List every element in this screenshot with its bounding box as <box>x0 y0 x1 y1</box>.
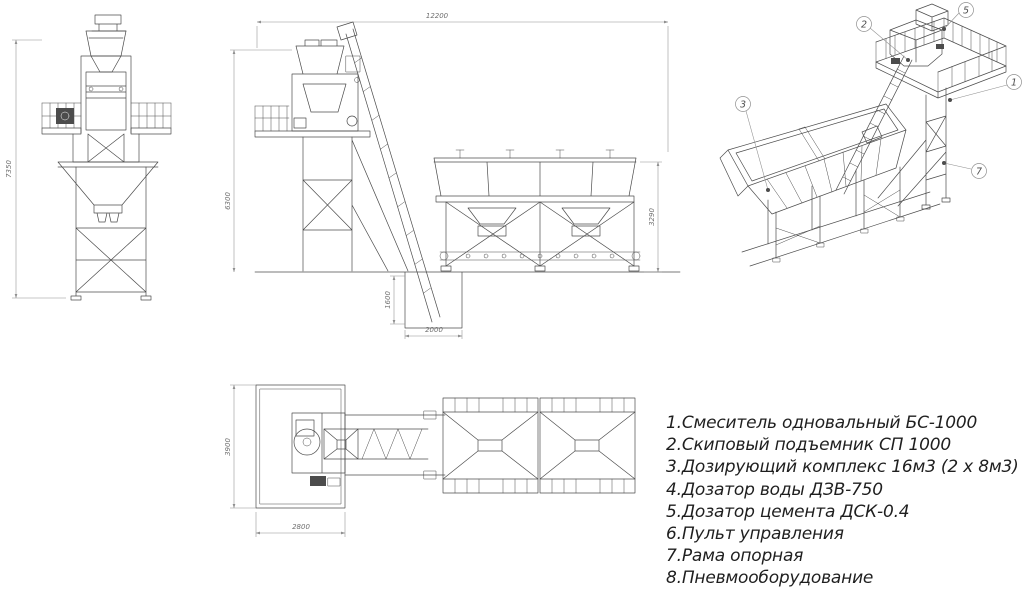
dim-side-mixer-height: 6300 <box>224 50 292 272</box>
callout-balloon-2: 2 <box>857 17 911 63</box>
parts-list-item-4: 4.Дозатор воды ДЗВ-750 <box>666 479 1024 501</box>
dim-label-mixer-height: 6300 <box>224 192 232 210</box>
parts-list-item-1: 1.Смеситель одновальный БС-1000 <box>666 412 1024 434</box>
callout-balloon-7: 7 <box>942 161 987 179</box>
callout-balloon-1: 1 <box>948 75 1022 103</box>
callout-number-3: 3 <box>740 99 746 110</box>
plan-view: 3900 2800 <box>224 385 635 537</box>
parts-list: 1.Смеситель одновальный БС-1000 2.Скипов… <box>666 412 1024 590</box>
dim-label-front-height: 7350 <box>5 160 13 178</box>
callout-number-5: 5 <box>963 5 969 16</box>
parts-list-item-8: 8.Пневмооборудование <box>666 567 1024 589</box>
callout-number-7: 7 <box>976 166 982 177</box>
dim-label-platform-length: 2800 <box>292 523 310 531</box>
isometric-view: 5 2 1 3 7 <box>720 3 1022 267</box>
dim-pit-depth: 1600 <box>384 276 405 324</box>
plan-view-geometry <box>256 385 635 508</box>
isometric-geometry <box>720 4 1006 266</box>
parts-list-item-2: 2.Скиповый подъемник СП 1000 <box>666 434 1024 456</box>
callout-number-1: 1 <box>1011 77 1017 88</box>
dim-label-plan-width: 3900 <box>224 438 232 456</box>
dim-label-pit-depth: 1600 <box>384 291 392 309</box>
parts-list-item-3: 3.Дозирующий комплекс 16м3 (2 х 8м3) <box>666 456 1024 478</box>
dim-plan-overall-width: 3900 <box>224 385 256 508</box>
dim-front-overall-height: 7350 <box>5 40 66 298</box>
dim-side-bins-height: 3290 <box>640 162 662 272</box>
parts-list-item-6: 6.Пульт управления <box>666 523 1024 545</box>
dim-label-overall-length: 12200 <box>426 12 449 20</box>
callout-balloon-5: 5 <box>942 3 974 32</box>
side-view: 12200 6300 <box>224 12 680 339</box>
parts-list-item-5: 5.Дозатор цемента ДСК-0.4 <box>666 501 1024 523</box>
dim-label-bins-height: 3290 <box>648 208 656 226</box>
parts-list-item-7: 7.Рама опорная <box>666 545 1024 567</box>
dim-label-pit-length: 2000 <box>425 326 443 334</box>
side-view-geometry <box>255 22 680 328</box>
technical-drawing-page: 7350 12200 6300 <box>0 0 1024 598</box>
front-view-geometry <box>42 15 171 300</box>
dim-plan-platform-length: 2800 <box>256 512 345 537</box>
callout-number-2: 2 <box>861 19 867 30</box>
front-view: 7350 <box>5 15 171 300</box>
